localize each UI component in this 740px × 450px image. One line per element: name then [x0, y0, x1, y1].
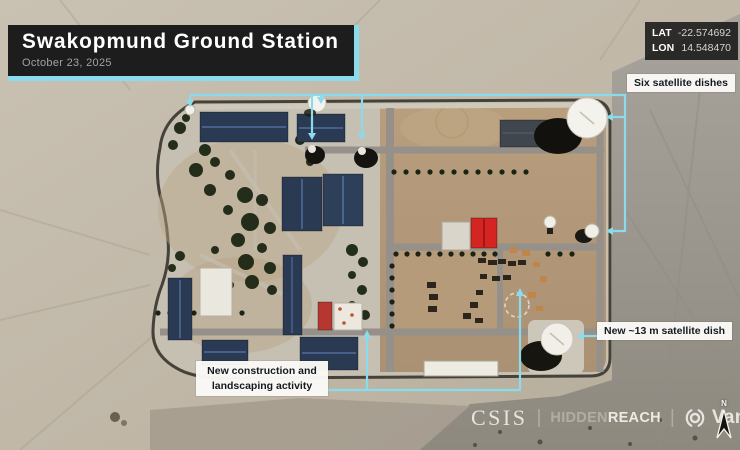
vantor-logo-icon [684, 407, 706, 429]
north-arrow-icon [714, 408, 734, 440]
annotated-satellite-graphic: Swakopmund Ground Station October 23, 20… [0, 0, 740, 450]
lat-label: LAT [652, 26, 672, 41]
longitude-row: LON 14.548470 [652, 41, 731, 56]
lon-label: LON [652, 41, 674, 56]
credits-bar: CSIS | HIDDENREACH | Vantor [471, 403, 740, 433]
callout-six-satellite-dishes: Six satellite dishes [627, 74, 735, 92]
credits-divider: | [536, 407, 541, 429]
lat-value: -22.574692 [678, 26, 731, 41]
image-date: October 23, 2025 [22, 57, 340, 69]
credits-divider-2: | [670, 407, 675, 429]
callout-new-construction: New construction and landscaping activit… [196, 361, 328, 396]
lon-value: 14.548470 [681, 41, 731, 56]
construction-label-line1: New construction and [207, 365, 317, 377]
ground-station-compound [153, 94, 610, 378]
csis-logo: CSIS [471, 405, 527, 431]
coordinates-panel: LAT -22.574692 LON 14.548470 [645, 22, 738, 60]
page-title: Swakopmund Ground Station [22, 30, 337, 54]
hiddenreach-logo: HIDDENREACH [550, 410, 660, 426]
latitude-row: LAT -22.574692 [652, 26, 731, 41]
north-label: N [721, 399, 727, 408]
callout-new-13m-dish: New ~13 m satellite dish [597, 322, 732, 340]
north-indicator: N [712, 399, 736, 445]
title-panel: Swakopmund Ground Station October 23, 20… [8, 25, 359, 81]
construction-label-line2: landscaping activity [212, 380, 312, 392]
